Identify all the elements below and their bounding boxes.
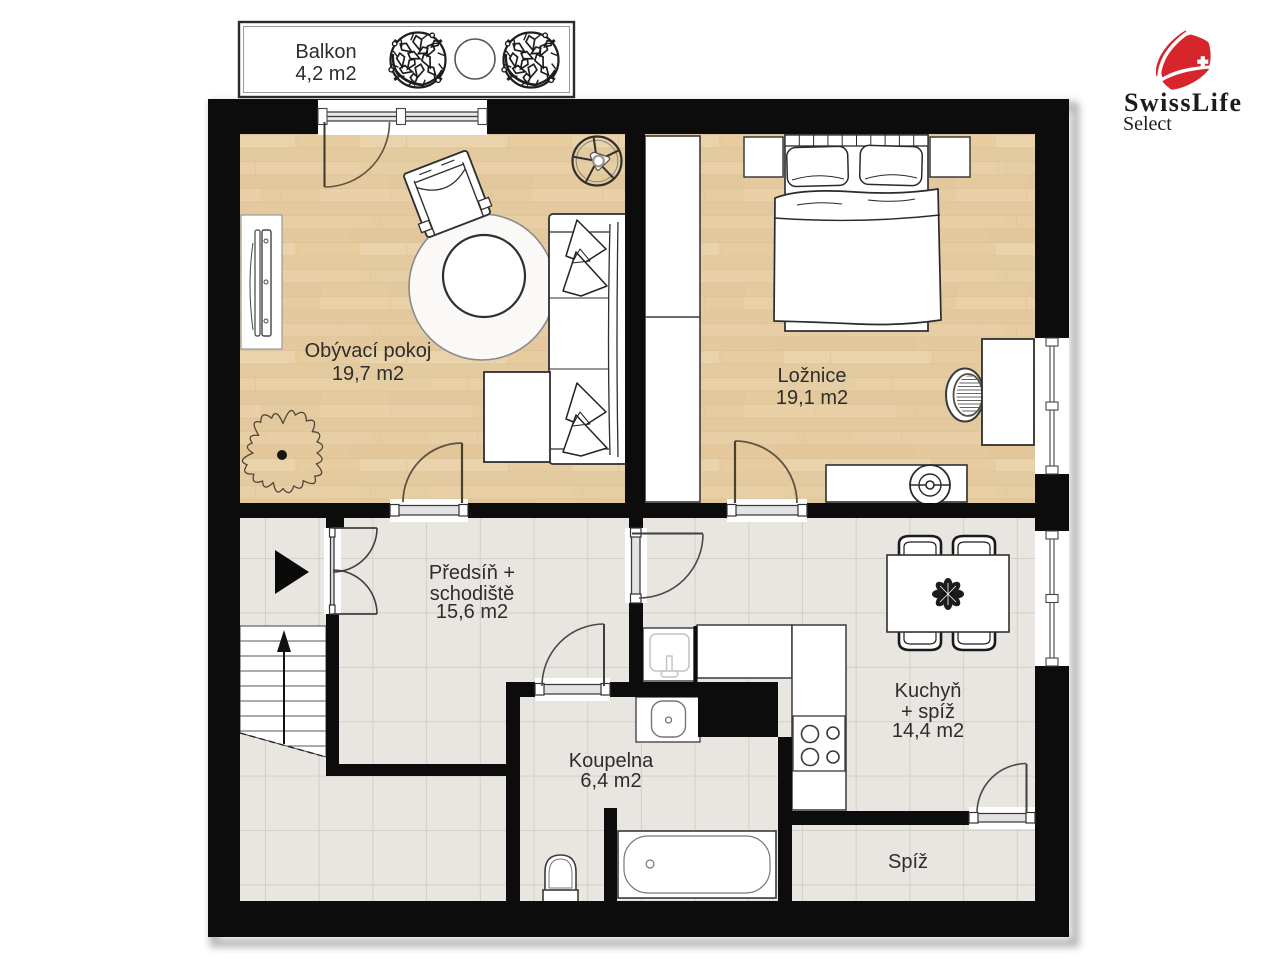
- svg-text:15,6 m2: 15,6 m2: [436, 601, 508, 623]
- svg-text:6,4 m2: 6,4 m2: [580, 770, 641, 792]
- svg-text:Balkon: Balkon: [295, 41, 356, 63]
- svg-text:4,2 m2: 4,2 m2: [295, 63, 356, 85]
- svg-text:Select: Select: [1123, 113, 1172, 135]
- svg-text:19,1 m2: 19,1 m2: [776, 387, 848, 409]
- svg-text:Koupelna: Koupelna: [569, 750, 654, 772]
- svg-text:Kuchyň: Kuchyň: [895, 680, 962, 702]
- svg-text:14,4 m2: 14,4 m2: [892, 720, 964, 742]
- svg-text:Ložnice: Ložnice: [778, 365, 847, 387]
- svg-text:Obývací pokoj: Obývací pokoj: [305, 340, 432, 362]
- svg-text:Předsíň +: Předsíň +: [429, 562, 515, 584]
- svg-text:Spíž: Spíž: [888, 851, 928, 873]
- svg-text:19,7 m2: 19,7 m2: [332, 363, 404, 385]
